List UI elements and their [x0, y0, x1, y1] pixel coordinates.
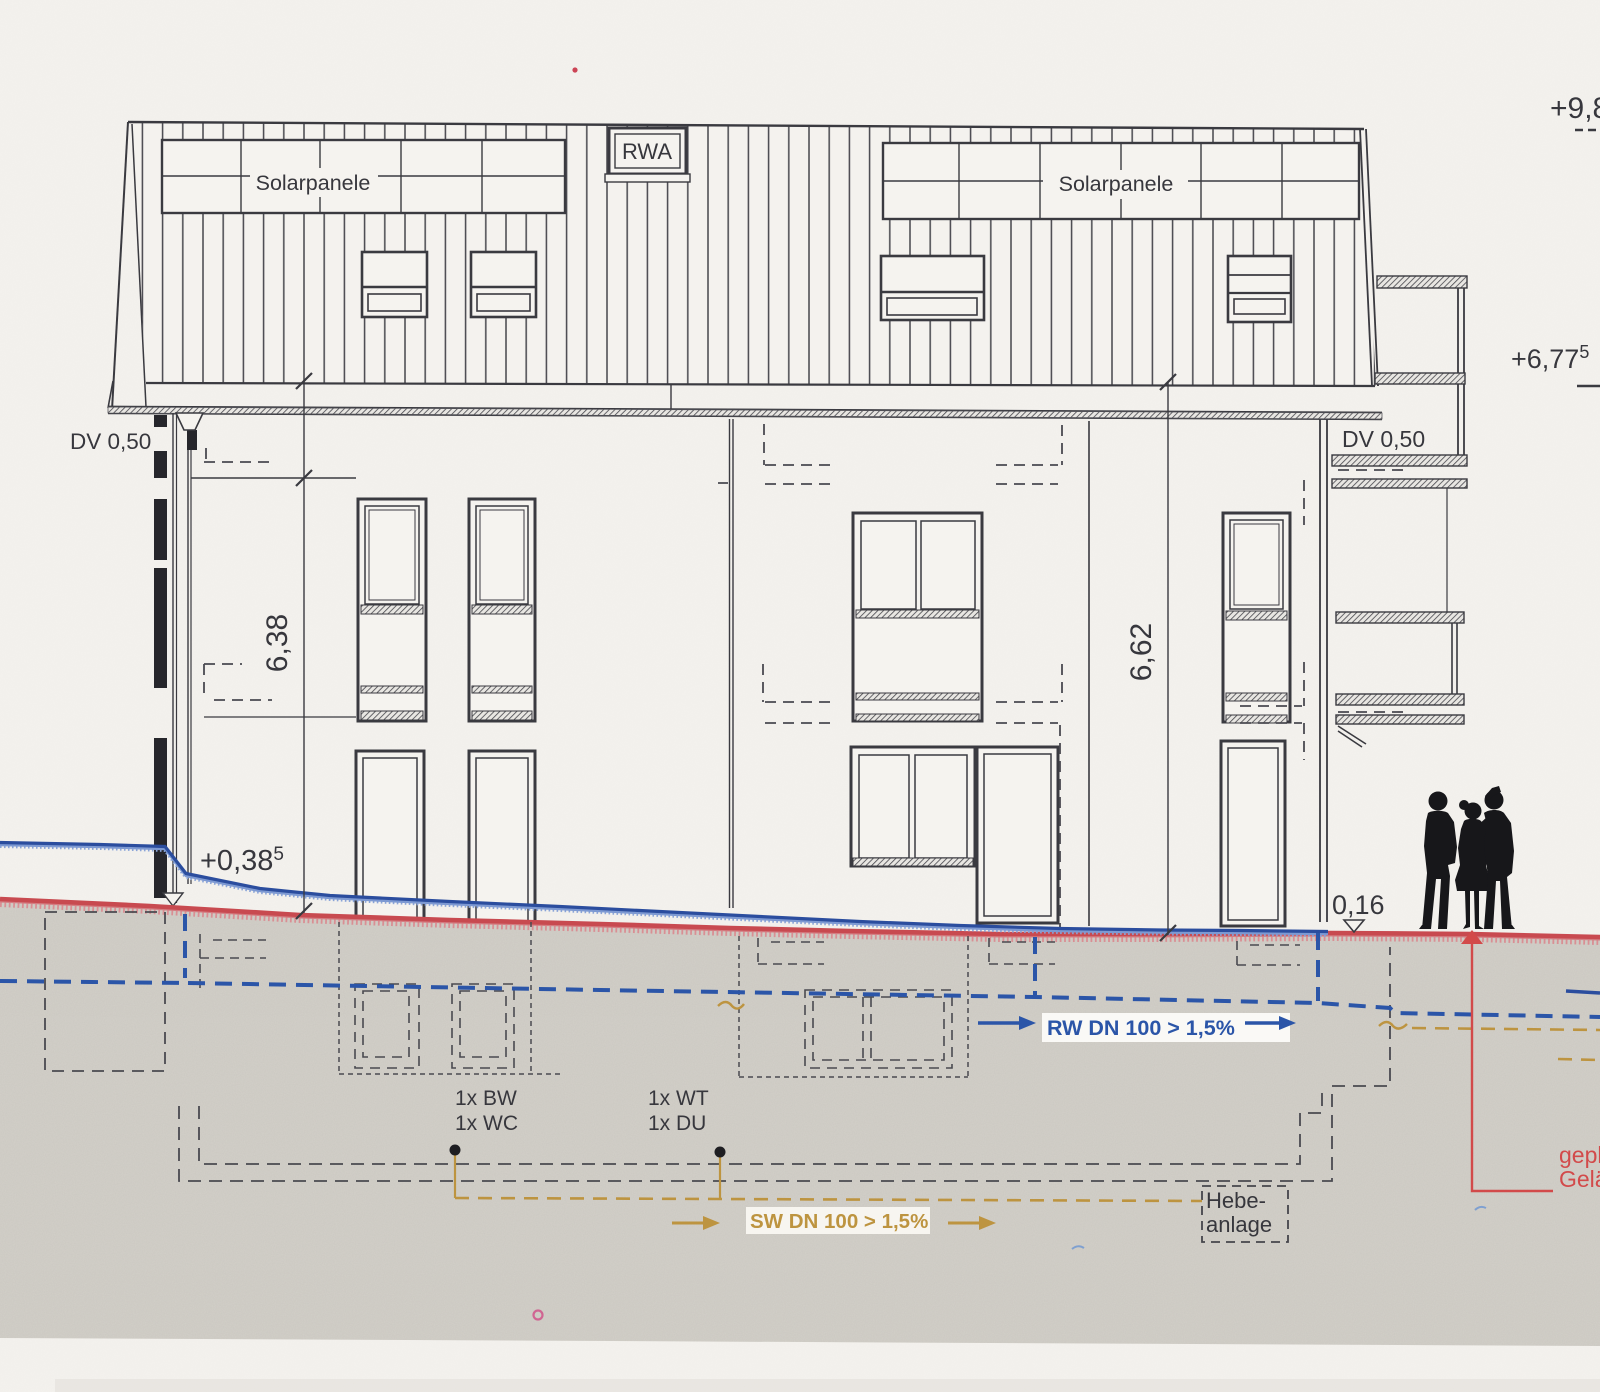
- svg-text:RW DN 100 > 1,5%: RW DN 100 > 1,5%: [1047, 1016, 1235, 1040]
- svg-text:SW DN 100 > 1,5%: SW DN 100 > 1,5%: [750, 1210, 928, 1233]
- svg-text:1x WT: 1x WT: [648, 1087, 709, 1110]
- svg-text:anlage: anlage: [1206, 1212, 1272, 1237]
- svg-text:Solarpanele: Solarpanele: [1059, 172, 1174, 196]
- svg-text:6,62: 6,62: [1125, 623, 1158, 681]
- svg-text:Hebe-: Hebe-: [1206, 1188, 1266, 1213]
- svg-text:geplantes: geplantes: [1559, 1142, 1600, 1168]
- svg-text:+6,775: +6,775: [1511, 342, 1589, 374]
- svg-text:1x BW: 1x BW: [455, 1087, 517, 1110]
- svg-text:1x WC: 1x WC: [455, 1112, 518, 1135]
- svg-text:DV 0,50: DV 0,50: [70, 429, 151, 454]
- svg-text:+9,8: +9,8: [1550, 92, 1600, 125]
- svg-text:Gelände: Gelände: [1559, 1166, 1600, 1192]
- svg-text:DV 0,50: DV 0,50: [1342, 426, 1425, 452]
- svg-text:6,38: 6,38: [261, 614, 294, 672]
- svg-text:RWA: RWA: [622, 139, 672, 164]
- svg-text:0,16: 0,16: [1332, 890, 1385, 920]
- svg-text:1x DU: 1x DU: [648, 1112, 706, 1135]
- svg-text:Solarpanele: Solarpanele: [256, 171, 371, 195]
- svg-text:+0,385: +0,385: [200, 844, 284, 877]
